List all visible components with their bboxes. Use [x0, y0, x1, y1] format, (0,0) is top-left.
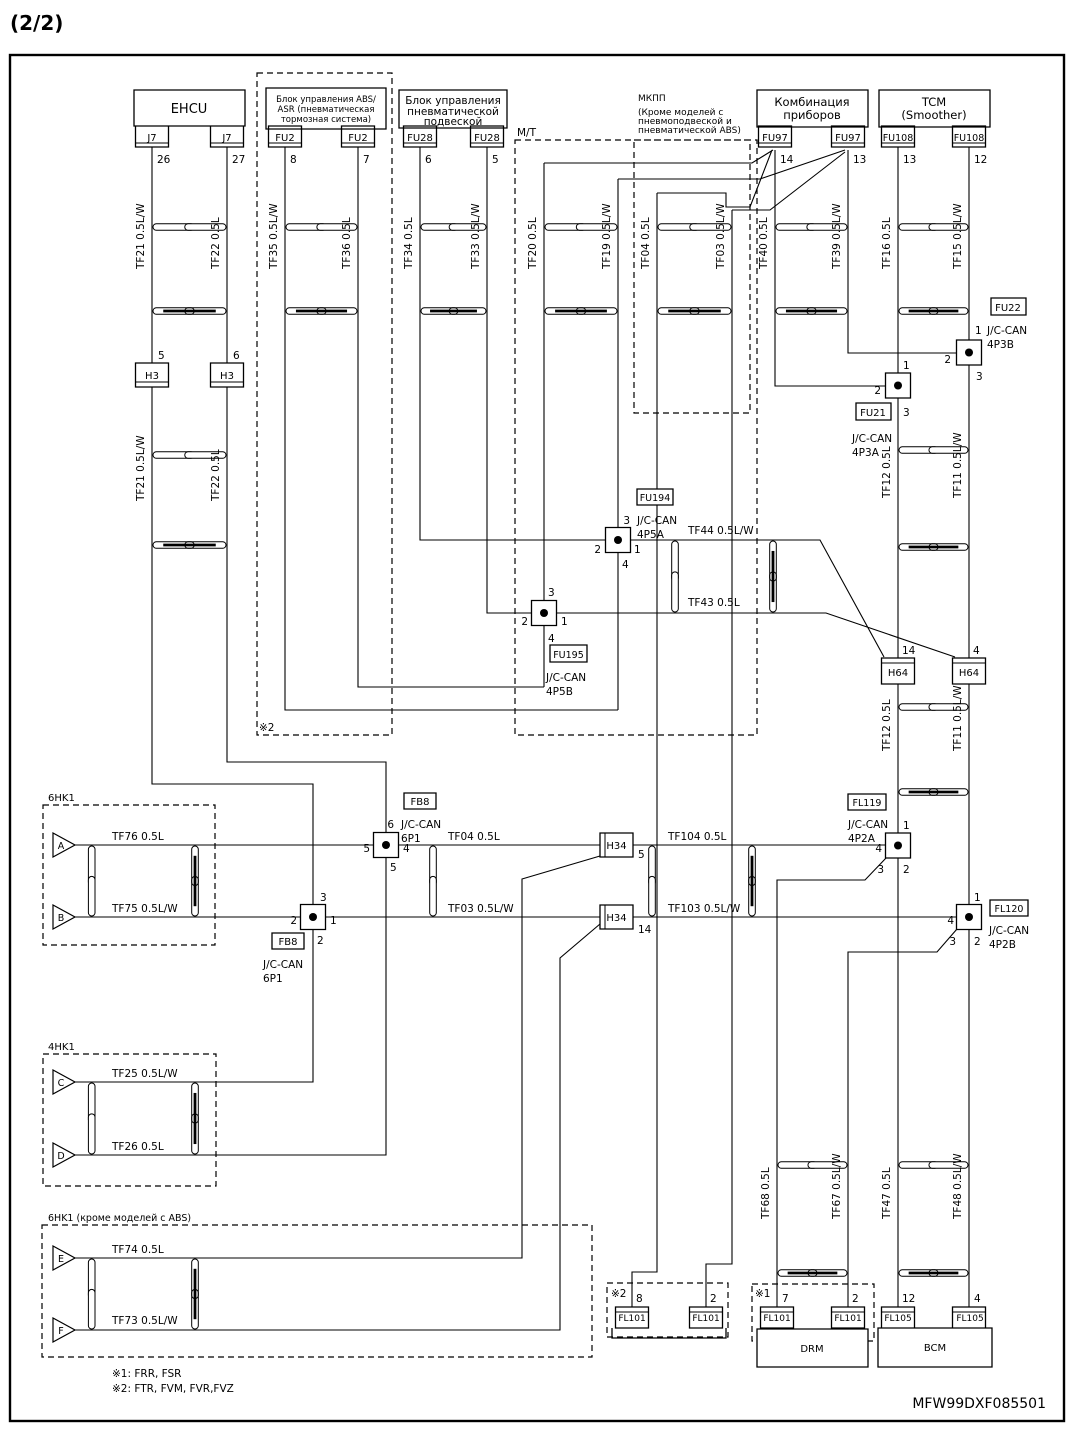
connector-fl101-b: FL101 [692, 1314, 719, 1324]
fl119-circuit: 4P2A [848, 833, 876, 845]
wiring-lines [73, 147, 969, 1330]
fu194-circuit: 4P5A [637, 529, 665, 541]
connector-fl101-c: FL101 [763, 1314, 790, 1324]
wire-tf103: TF103 0.5L/W [667, 903, 741, 915]
connector-h64-b: H64 [959, 668, 979, 679]
fu195-junction-dot [540, 609, 548, 617]
label-6hk1-no-abs: 6HK1 (кроме моделей с ABS) [48, 1213, 191, 1224]
fb8t-pin-4: 4 [403, 843, 410, 855]
pin-14-h34: 14 [638, 924, 652, 936]
connector-fu97-a: FU97 [762, 133, 788, 144]
wire-tf03-option: TF03 0.5L/W [715, 203, 727, 270]
pin-26: 26 [157, 154, 171, 166]
fl119-pin-2: 2 [903, 864, 910, 876]
fu22-jccan: J/C-CAN [986, 325, 1027, 337]
note-mark-drm: ※1 [755, 1288, 770, 1300]
fb8t-pin-6: 6 [387, 819, 394, 831]
footnote-1: ※1: FRR, FSR [112, 1368, 181, 1380]
tcm-line1: TCM [921, 95, 946, 109]
pin-13-tcm: 13 [903, 154, 916, 166]
fu194-junction-dot [614, 536, 622, 544]
twisted-pair-splice [192, 1289, 199, 1329]
wire-tf68: TF68 0.5L [760, 1167, 772, 1220]
wire-tf104: TF104 0.5L [667, 831, 727, 843]
fb8b-jccan: J/C-CAN [262, 959, 303, 971]
fl120-jccan: J/C-CAN [988, 925, 1029, 937]
wire-tf26: TF26 0.5L [111, 1141, 164, 1153]
junction-fl119-label: FL119 [853, 798, 882, 809]
mkpp-option-line1: МКПП [638, 94, 666, 104]
fl119-pin-3: 3 [877, 864, 884, 876]
pin-14: 14 [780, 154, 794, 166]
fb8t-jccan: J/C-CAN [400, 819, 441, 831]
mt-option-label: М/Т [517, 127, 537, 139]
fl119-jccan: J/C-CAN [847, 819, 888, 831]
triangle-d-letter: D [57, 1151, 64, 1162]
wire-tf04-option: TF04 0.5L [640, 217, 652, 270]
fl119-pin-4: 4 [875, 843, 882, 855]
wire-tf20: TF20 0.5L [527, 217, 539, 270]
abs-unit-line1: Блок управления ABS/ [276, 95, 376, 105]
wire-tf73: TF73 0.5L/W [111, 1315, 178, 1327]
fu195-circuit: 4P5B [546, 686, 573, 698]
fl119-junction-dot [894, 842, 902, 850]
twisted-pair-splice [672, 572, 679, 612]
wire-tf22-upper: TF22 0.5L [210, 217, 222, 270]
fu22-pin-2: 2 [944, 354, 951, 366]
fl120-pin-4: 4 [947, 915, 954, 927]
fb8b-pin-2l: 2 [290, 915, 297, 927]
fu194-pin-2: 2 [594, 544, 601, 556]
twisted-pair-splice [929, 1270, 968, 1277]
connector-fl105-b: FL105 [956, 1314, 983, 1324]
drm-label: DRM [800, 1344, 823, 1355]
sheet-number: (2/2) [10, 11, 63, 35]
wire-tf12-lower: TF12 0.5L [881, 699, 893, 752]
twisted-pair-splice [690, 308, 731, 315]
fl120-pin-1: 1 [974, 892, 981, 904]
connector-j7-b: J7 [221, 133, 231, 144]
fu21-pin-3: 3 [903, 407, 910, 419]
fl120-junction-dot [965, 913, 973, 921]
connector-fl101-d: FL101 [834, 1314, 861, 1324]
pin-5-h3: 5 [158, 350, 165, 362]
wire-tf16: TF16 0.5L [881, 217, 893, 270]
junction-fu21-label: FU21 [860, 408, 886, 419]
twisted-pair-splice [88, 1289, 95, 1329]
fu195-pin-3: 3 [548, 587, 555, 599]
connector-fu108-a: FU108 [883, 133, 914, 144]
pin-2-fl101-b: 2 [852, 1293, 859, 1305]
pin-27: 27 [232, 154, 245, 166]
connector-fu108-b: FU108 [954, 133, 985, 144]
fu21-circuit: 4P3A [852, 447, 880, 459]
wire-tf48: TF48 0.5L/W [952, 1153, 964, 1220]
wire-tf11-upper: TF11 0.5L/W [952, 432, 964, 499]
label-4hk1: 4HK1 [48, 1042, 75, 1053]
ehcu-label: EHCU [171, 102, 208, 117]
twisted-pair-splice [749, 876, 756, 916]
twisted-pair-splice [449, 308, 486, 315]
pin-8-fl101: 8 [636, 1293, 643, 1305]
cluster-line2: приборов [783, 108, 841, 122]
pin-14-h64: 14 [902, 645, 916, 657]
tcm-line2: (Smoother) [901, 108, 966, 122]
fu194-pin-4: 4 [622, 559, 629, 571]
wiring-diagram: (2/2)EHCUБлок управления ABS/ASR (пневма… [0, 0, 1074, 1428]
triangle-b-letter: B [58, 913, 65, 924]
fu21-pin-1: 1 [903, 360, 910, 372]
fl120-circuit: 4P2B [989, 939, 1016, 951]
fu195-jccan: J/C-CAN [545, 672, 586, 684]
wire-tf33: TF33 0.5L/W [470, 203, 482, 270]
wire-tf03-main: TF03 0.5L/W [447, 903, 514, 915]
abs-unit-line3: тормозная система) [281, 115, 371, 125]
wire-tf22-lower: TF22 0.5L [210, 449, 222, 502]
fu195-pin-2: 2 [521, 616, 528, 628]
wire-tf11-lower: TF11 0.5L/W [952, 685, 964, 752]
wire-tf35: TF35 0.5L/W [268, 203, 280, 270]
wire-tf12-upper: TF12 0.5L [881, 446, 893, 499]
junction-fu195-label: FU195 [553, 650, 584, 661]
fu22-circuit: 4P3B [987, 339, 1014, 351]
fl119-pin-1: 1 [903, 820, 910, 832]
triangle-f-letter: F [58, 1326, 63, 1337]
pin-7: 7 [363, 154, 370, 166]
fu21-jccan: J/C-CAN [851, 433, 892, 445]
triangle-c-letter: C [58, 1078, 65, 1089]
fb8-top-junction-dot [382, 841, 390, 849]
wire-tf74: TF74 0.5L [111, 1244, 164, 1256]
susp-unit-line3: подвеской [424, 116, 483, 128]
fu22-pin-3: 3 [976, 371, 983, 383]
pin-12: 12 [974, 154, 987, 166]
connector-h34-b: H34 [606, 913, 626, 924]
wire-tf75: TF75 0.5L/W [111, 903, 178, 915]
connector-fl105-a: FL105 [884, 1314, 911, 1324]
diagram-labels: (2/2)EHCUБлок управления ABS/ASR (пневма… [10, 11, 1046, 1412]
dashed-option-boxes [42, 73, 874, 1357]
pin-13-cluster: 13 [853, 154, 866, 166]
mkpp-option-line4: пневматической ABS) [638, 126, 741, 136]
twisted-pair-splice [576, 308, 617, 315]
pin-6-h3: 6 [233, 350, 240, 362]
twisted-pair-splice [88, 876, 95, 916]
fl120-pin-3: 3 [949, 936, 956, 948]
twisted-pair-splice [185, 308, 226, 315]
fl120-pin-2: 2 [974, 936, 981, 948]
fu21-pin-2: 2 [874, 385, 881, 397]
connector-fu97-b: FU97 [835, 133, 861, 144]
fu22-junction-dot [965, 349, 973, 357]
wire-tf21-upper: TF21 0.5L/W [135, 203, 147, 270]
wire-tf47: TF47 0.5L [881, 1167, 893, 1220]
connector-fu2-b: FU2 [348, 133, 367, 144]
pin-5: 5 [492, 154, 499, 166]
wire-tf40: TF40 0.5L [758, 217, 770, 270]
wire-tf04-main: TF04 0.5L [447, 831, 500, 843]
pin-4-h64: 4 [973, 645, 980, 657]
fb8b-pin-2b: 2 [317, 935, 324, 947]
wire-tf76: TF76 0.5L [111, 831, 164, 843]
fb8b-pin-1: 1 [330, 915, 337, 927]
connector-h64-a: H64 [888, 668, 908, 679]
pin-2-fl101-a: 2 [710, 1293, 717, 1305]
wire-tf19: TF19 0.5L/W [601, 203, 613, 270]
bcm-label: BCM [924, 1343, 946, 1354]
drawing-number: MFW99DXF085501 [912, 1396, 1046, 1412]
twisted-pair-splice [192, 876, 199, 916]
connector-h3-b: H3 [220, 371, 234, 382]
wire-tf67: TF67 0.5L/W [831, 1153, 843, 1220]
pin-6: 6 [425, 154, 432, 166]
triangle-e-letter: E [58, 1254, 64, 1265]
fb8b-pin-3: 3 [320, 892, 327, 904]
fu195-pin-4: 4 [548, 633, 555, 645]
pin-8: 8 [290, 154, 297, 166]
fu22-pin-1: 1 [975, 325, 982, 337]
wire-tf44: TF44 0.5L/W [687, 525, 754, 537]
junction-fu194-label: FU194 [640, 493, 671, 504]
twisted-pair-splice [929, 789, 968, 796]
twisted-pair-splice [430, 876, 437, 916]
fb8b-circuit: 6P1 [263, 973, 283, 985]
twisted-pair-splice [192, 1114, 199, 1154]
twisted-pair-splice [929, 544, 968, 551]
note-mark-fl101: ※2 [611, 1288, 626, 1300]
label-6hk1: 6HK1 [48, 793, 75, 804]
wire-tf25: TF25 0.5L/W [111, 1068, 178, 1080]
twisted-pair-splice [317, 308, 357, 315]
fu194-pin-3: 3 [623, 515, 630, 527]
connector-fu2-a: FU2 [275, 133, 294, 144]
pin-5-h34: 5 [638, 849, 645, 861]
wire-tf34: TF34 0.5L [403, 217, 415, 270]
pin-4-fl105: 4 [974, 1293, 981, 1305]
junction-fb8-bottom-label: FB8 [279, 937, 298, 948]
connector-h34-a: H34 [606, 841, 626, 852]
pin-12-fl105: 12 [902, 1293, 915, 1305]
wire-tf43: TF43 0.5L [687, 597, 740, 609]
cluster-line1: Комбинация [774, 95, 849, 109]
wire-tf21-lower: TF21 0.5L/W [135, 435, 147, 502]
footnote-2: ※2: FTR, FVM, FVR,FVZ [112, 1383, 234, 1395]
connector-h3-a: H3 [145, 371, 159, 382]
connector-fl101-a: FL101 [618, 1314, 645, 1324]
fb8t-pin-5b: 5 [390, 862, 397, 874]
wire-tf36: TF36 0.5L [341, 217, 353, 270]
twisted-pair-splice [770, 572, 777, 612]
wiring-diagram-page: (2/2)EHCUБлок управления ABS/ASR (пневма… [0, 0, 1074, 1428]
wire-tf15: TF15 0.5L/W [952, 203, 964, 270]
fu195-pin-1: 1 [561, 616, 568, 628]
twisted-pair-splice [185, 542, 226, 549]
fb8t-pin-5l: 5 [363, 843, 370, 855]
twisted-pair-splice [649, 876, 656, 916]
fb8-bottom-junction-dot [309, 913, 317, 921]
fu194-jccan: J/C-CAN [636, 515, 677, 527]
wire-tf39: TF39 0.5L/W [831, 203, 843, 270]
connector-fu28-a: FU28 [407, 133, 433, 144]
triangle-a-letter: A [58, 841, 65, 852]
junction-fb8-top-label: FB8 [411, 797, 430, 808]
pin-7-fl101: 7 [782, 1293, 789, 1305]
fu194-pin-1: 1 [634, 544, 641, 556]
junction-fl120-label: FL120 [995, 904, 1024, 915]
twisted-pair-splice [808, 1270, 847, 1277]
twisted-pair-splice [88, 1114, 95, 1154]
abs-unit-line2: ASR (пневматическая [278, 105, 375, 115]
connector-j7-a: J7 [146, 133, 156, 144]
note-mark-abs: ※2 [259, 722, 274, 734]
junction-fu22-label: FU22 [995, 303, 1021, 314]
twisted-pair-splice [807, 308, 847, 315]
connector-fu28-b: FU28 [474, 133, 500, 144]
fu21-junction-dot [894, 382, 902, 390]
twisted-pair-splice [929, 308, 968, 315]
